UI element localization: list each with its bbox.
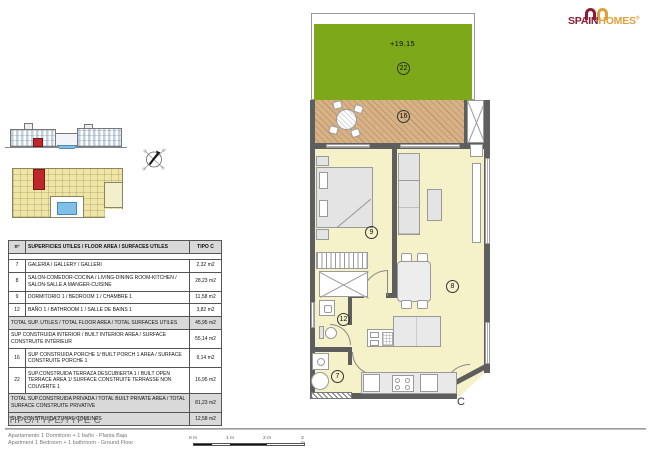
room-number-gallery: 7 (331, 370, 344, 383)
row-desc: SUP CONSTRUIDA PORCHE 1/ BUILT PORCH 1 A… (26, 349, 190, 368)
scale-segment (230, 444, 267, 446)
bathroom-sink (319, 300, 335, 316)
row-value: 45,95 m2 (190, 317, 222, 330)
nightstand (316, 156, 329, 166)
dish-rack (382, 332, 393, 346)
scale-segment (267, 444, 304, 446)
closet (319, 271, 368, 297)
living-window (485, 158, 490, 244)
room-number-living: 8 (446, 280, 459, 293)
pillow (319, 200, 328, 217)
patio-table (336, 109, 357, 130)
description-en: Apartment 1 Bedroom + 1 bathroom - Groun… (8, 440, 133, 446)
row-desc: BAÑO 1 / BATHROOM 1 / SALLE DE BAINS 1 (26, 304, 190, 317)
sofa (398, 153, 420, 235)
row-value: 2,32 m2 (190, 259, 222, 272)
dining-chair (401, 300, 412, 309)
floorplan-sheet: { "logo": { "brand_primary": "SPAIN", "b… (0, 0, 650, 450)
basin (324, 305, 332, 313)
row-num: 12 (9, 304, 26, 317)
row-value: 11,58 m2 (190, 291, 222, 304)
table-row: 9 DORMITORIO 1 / BEDROOM 1 / CHAMBRE 1 1… (9, 291, 222, 304)
sink-bowl (370, 340, 379, 346)
table-row-total: TOTAL SUP. UTILES / TOTAL FLOOR AREA / T… (9, 317, 222, 330)
washer-drum (317, 358, 325, 366)
scale-bar-segments (193, 443, 305, 447)
kitchen-sink-unit (367, 329, 394, 347)
surface-area-table: nº SUPERFICIES UTILES / FLOOR AREA / SUR… (8, 240, 222, 426)
wall-porch-left (310, 100, 315, 143)
row-value: 28,23 m2 (190, 272, 222, 291)
table-header-row: nº SUPERFICIES UTILES / FLOOR AREA / SUR… (9, 241, 222, 254)
row-desc: TOTAL SUP.CONSTRUIDA PRIVADA / TOTAL BUI… (9, 393, 190, 412)
table-row: 7 GALERÍA / GALLERY / GALLERI 2,32 m2 (9, 259, 222, 272)
row-value: 55,14 m2 (190, 329, 222, 348)
porch-storage-closet (467, 100, 484, 143)
pillow (319, 172, 328, 189)
fridge (363, 374, 380, 392)
dining-chair (417, 300, 428, 309)
scale-label: 0 m (189, 436, 197, 441)
scale-label: 1 m (226, 436, 234, 441)
closet-x-line (320, 272, 369, 299)
kitchen-island (393, 316, 441, 347)
header-type: TIPO C (190, 241, 222, 254)
kitchen-window (485, 322, 490, 364)
toilet-tank (319, 326, 324, 339)
block-letter: C (457, 396, 465, 408)
row-desc: SUP.CONSTRUIDA TERRAZA DESCUBIERTA 1 / B… (26, 368, 190, 394)
wardrobe (316, 252, 368, 269)
row-num: 7 (9, 259, 26, 272)
washing-machine (312, 353, 329, 370)
row-num: 16 (9, 349, 26, 368)
nightstand (316, 229, 329, 240)
burner (395, 385, 400, 390)
row-desc: GALERÍA / GALLERY / GALLERI (26, 259, 190, 272)
bed (316, 167, 373, 228)
header-desc: SUPERFICIES UTILES / FLOOR AREA / SURFAC… (26, 241, 190, 254)
row-desc: DORMITORIO 1 / BEDROOM 1 / CHAMBRE 1 (26, 291, 190, 304)
scale-label: 2 m (263, 436, 271, 441)
tv-unit (472, 163, 481, 243)
scale-segment (212, 444, 230, 446)
wall-bathroom-gallery (310, 347, 352, 352)
blanket-fold-line (337, 199, 371, 228)
row-desc: TOTAL SUP. UTILES / TOTAL FLOOR AREA / T… (9, 317, 190, 330)
burner (405, 385, 410, 390)
ac-unit (470, 144, 483, 157)
room-number-bathroom: 12 (337, 313, 350, 326)
bedroom-door-leaf (387, 270, 388, 296)
type-title: TIPO/TYPE/TYPE C (8, 415, 101, 426)
row-value: 16,95 m2 (190, 368, 222, 394)
row-value: 12,58 m2 (190, 413, 222, 426)
row-num: 22 (9, 368, 26, 394)
table-row-total: TOTAL SUP.CONSTRUIDA PRIVADA / TOTAL BUI… (9, 393, 222, 412)
room-number-terrace: 22 (397, 62, 410, 75)
bedroom-window (326, 144, 370, 148)
row-desc: SALON-COMEDOR-COCINA / LIVING-DINING ROO… (26, 272, 190, 291)
row-value: 9,14 m2 (190, 349, 222, 368)
burner (395, 378, 400, 383)
porch-sliding-door (400, 144, 460, 148)
hall-window (311, 302, 315, 328)
row-num: 8 (9, 272, 26, 291)
scale-segment (194, 444, 212, 446)
terrace-area (314, 24, 472, 100)
description-es: Apartamento 1 Dormitorio + 1 baño - Plan… (8, 433, 127, 439)
dining-table (397, 261, 431, 302)
burner (405, 378, 410, 383)
kitchen-appliance (420, 374, 438, 392)
row-value: 3,82 m2 (190, 304, 222, 317)
terrace-level-label: +19.15 (390, 39, 415, 48)
laundry-basket (311, 372, 329, 390)
vent-grille (311, 392, 352, 399)
table-row: 16 SUP CONSTRUIDA PORCHE 1/ BUILT PORCH … (9, 349, 222, 368)
table-row: SUP CONSTRUIDA INTERIOR / BUILT INTERIOR… (9, 329, 222, 348)
toilet-bowl (325, 327, 337, 339)
footer-rule (5, 428, 646, 430)
table-row: 8 SALON-COMEDOR-COCINA / LIVING-DINING R… (9, 272, 222, 291)
table-row: 22 SUP.CONSTRUIDA TERRAZA DESCUBIERTA 1 … (9, 368, 222, 394)
row-desc: SUP CONSTRUIDA INTERIOR / BUILT INTERIOR… (9, 329, 190, 348)
row-value: 81,23 m2 (190, 393, 222, 412)
table-row: 12 BAÑO 1 / BATHROOM 1 / SALLE DE BAINS … (9, 304, 222, 317)
coffee-table (427, 189, 442, 221)
header-num: nº (9, 241, 26, 254)
row-num: 9 (9, 291, 26, 304)
wall-porch-right (484, 100, 490, 143)
room-number-porch: 16 (397, 110, 410, 123)
room-number-bedroom: 9 (365, 226, 378, 239)
scale-bar: 0 m 1 m 2 m 3 m (192, 436, 310, 448)
sink-bowl (370, 332, 379, 338)
stove (392, 375, 414, 392)
